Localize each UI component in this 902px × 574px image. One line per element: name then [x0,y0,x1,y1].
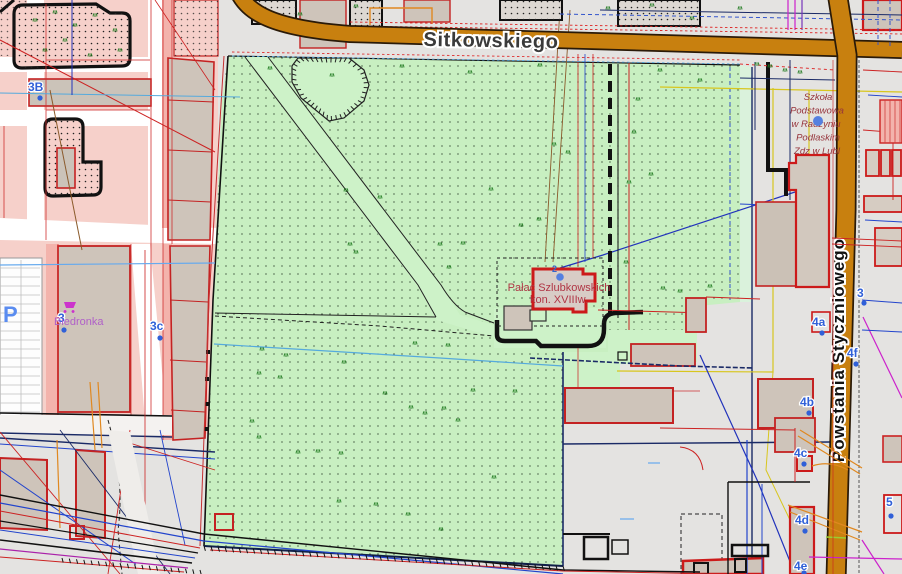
svg-text:Powstania Styczniowego: Powstania Styczniowego [829,238,848,462]
svg-text:Podstawowa: Podstawowa [790,106,844,117]
svg-text:Zdz w Lubl: Zdz w Lubl [793,146,841,157]
svg-text:4b: 4b [800,395,814,409]
svg-text:4e: 4e [794,559,808,573]
svg-text:4a: 4a [812,315,826,329]
svg-text:3: 3 [857,286,864,300]
svg-text:4c: 4c [794,446,808,460]
svg-text:Biedronka: Biedronka [54,316,104,328]
svg-text:Pałac Szlubkowskich: Pałac Szlubkowskich [508,282,611,294]
svg-text:2: 2 [552,264,557,274]
svg-text:P: P [3,302,18,327]
svg-text:4f: 4f [847,346,859,360]
svg-text:Szkoła: Szkoła [804,92,833,103]
svg-text:kon. XVIIIw.: kon. XVIIIw. [530,294,588,306]
svg-text:Podlaskim: Podlaskim [796,133,840,144]
svg-text:3c: 3c [150,319,164,333]
svg-text:Sitkowskiego: Sitkowskiego [423,29,558,53]
svg-text:3B: 3B [28,80,44,94]
svg-text:4d: 4d [795,513,809,527]
svg-text:5: 5 [886,495,893,509]
